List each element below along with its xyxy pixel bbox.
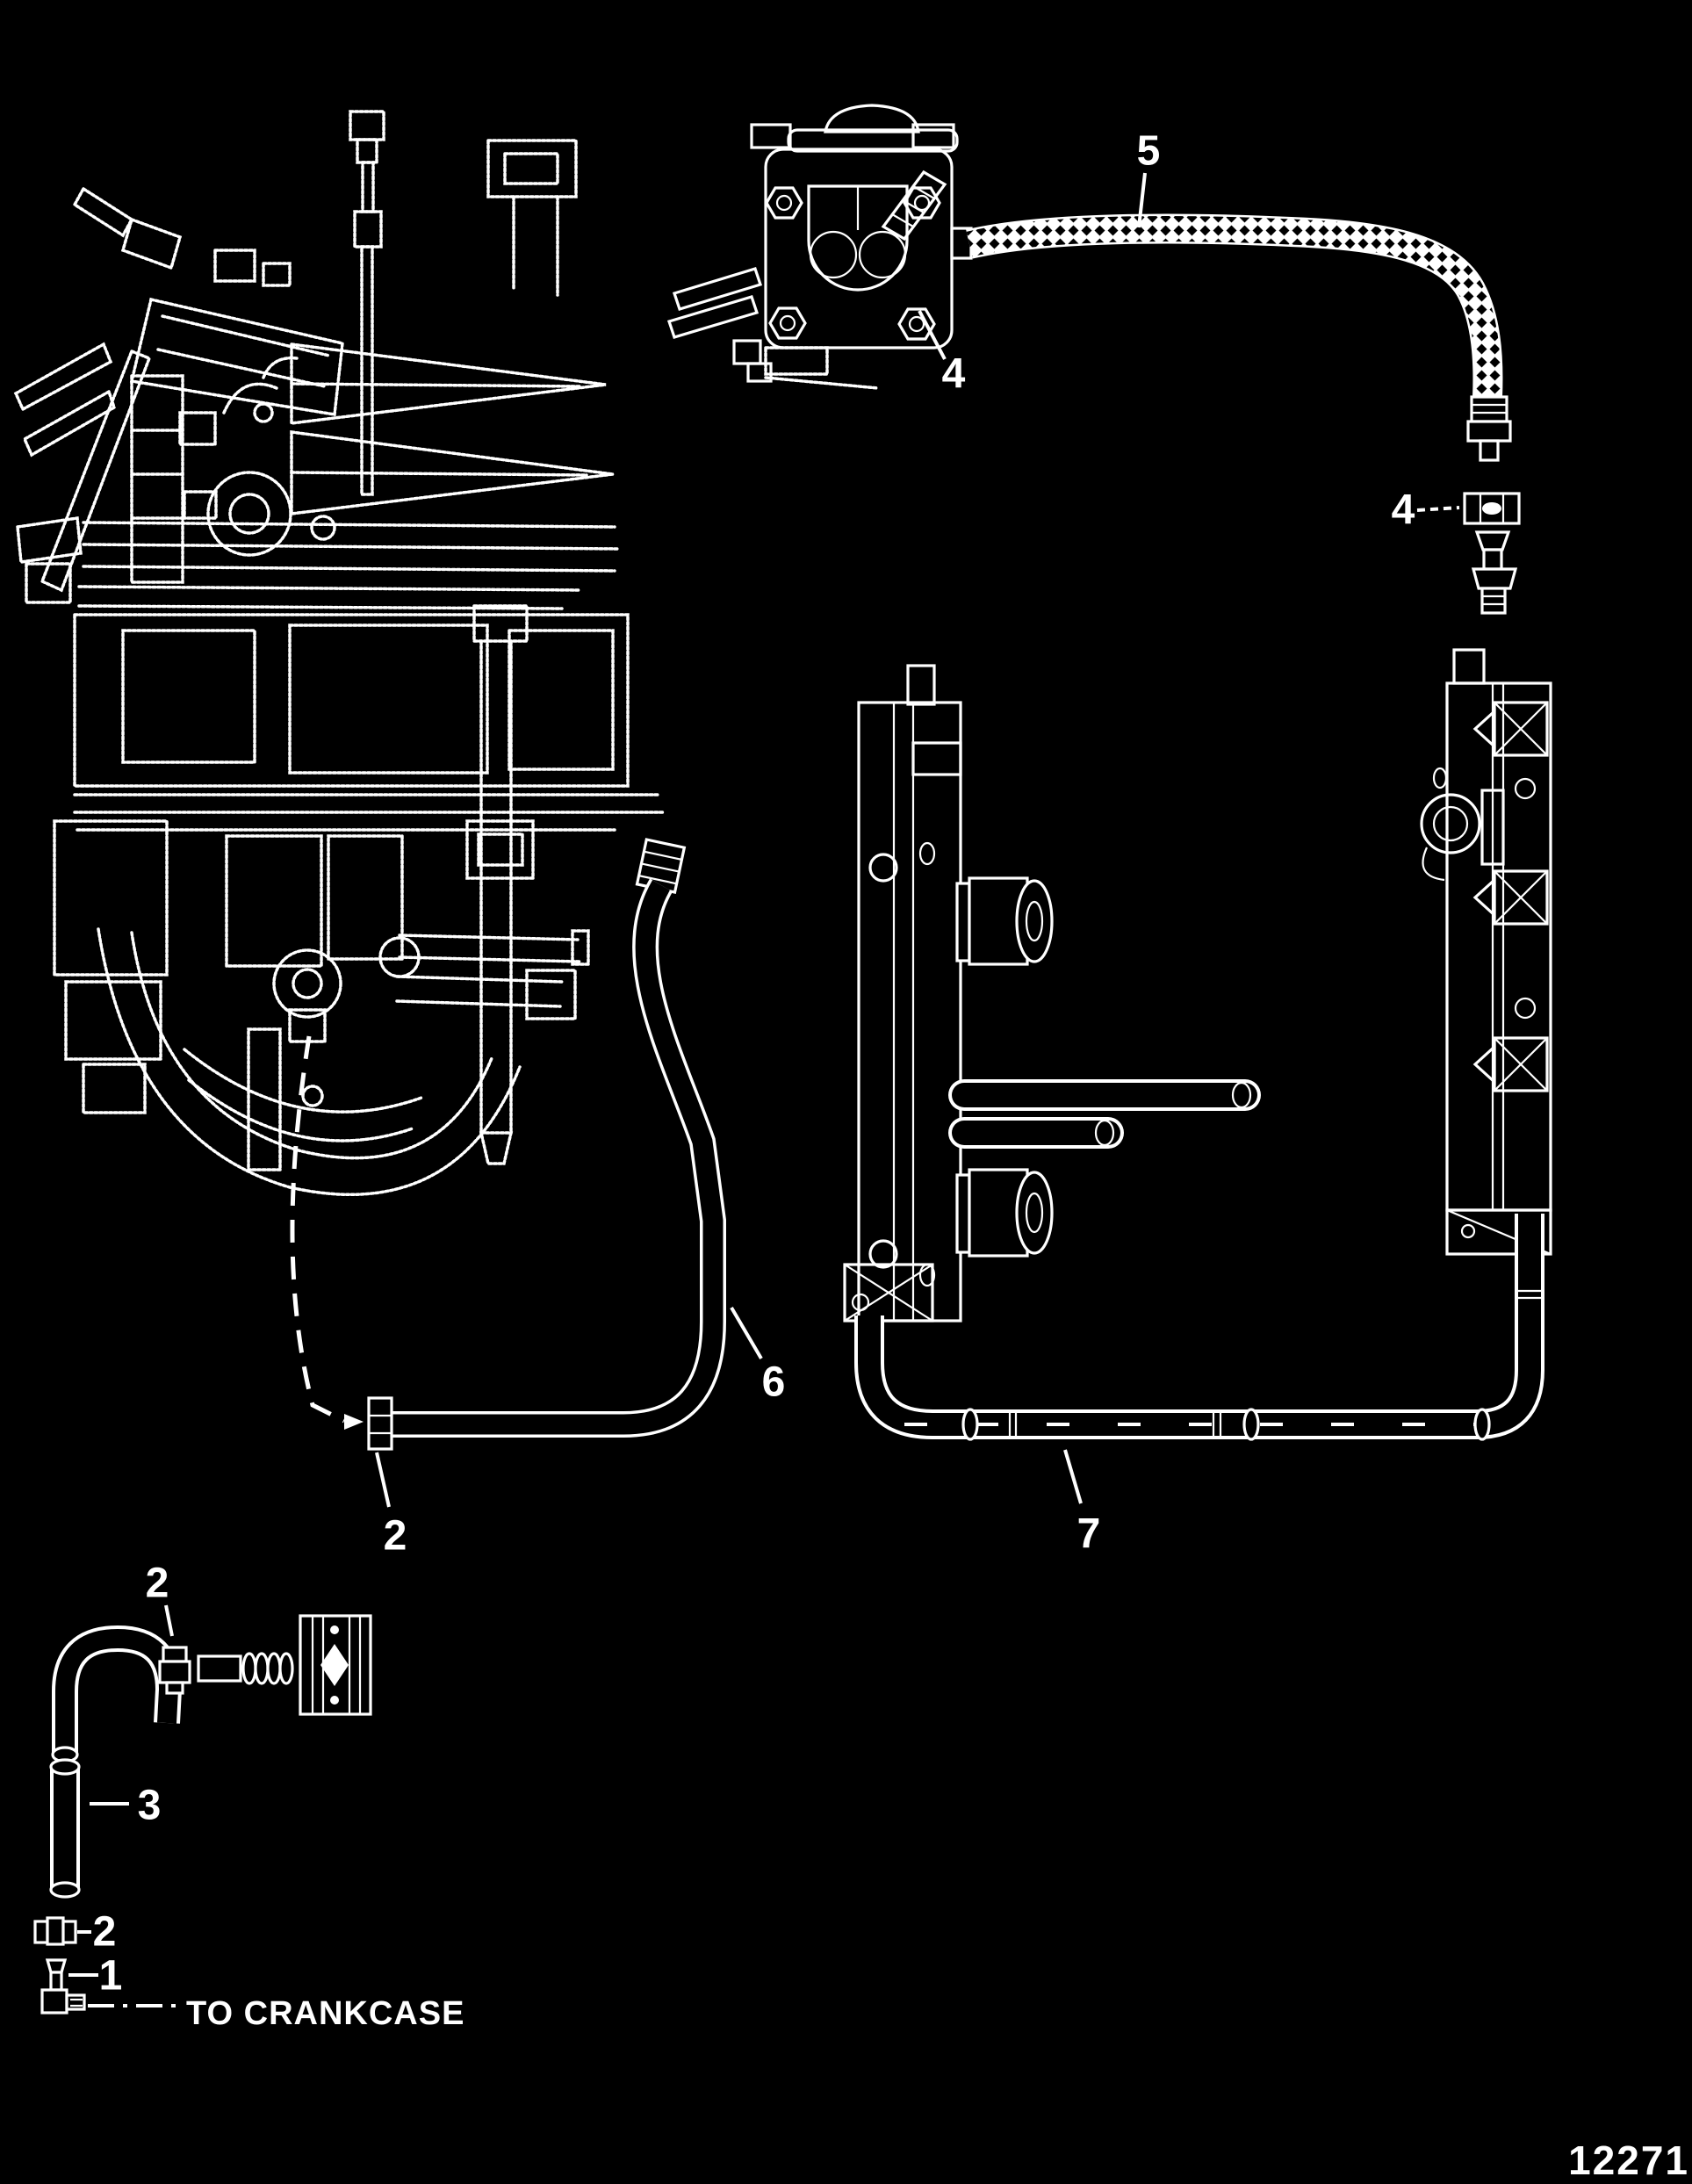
figure-number: 12271 [1568,2137,1689,2183]
callout-2-hose6: 2 [384,1513,407,1560]
fuel-injector [957,1170,1052,1256]
callout-4-pump: 4 [942,351,966,398]
callout-1: 1 [99,1953,123,2000]
parts-diagram-canvas: 5 4 4 6 2 7 2 3 2 1 TO CRANKCASE 12271 [0,0,1692,2184]
hose-end-fitting-2 [369,1398,392,1449]
callout-5: 5 [1137,128,1161,175]
callout-2-upper: 2 [146,1561,169,1607]
hose-coupler [1244,1409,1258,1439]
callout-2-lower: 2 [93,1909,117,1956]
hose-coupler [1475,1409,1489,1439]
hose-coupler [963,1409,977,1439]
fuel-injector [957,878,1052,964]
hose-connector [637,840,684,892]
callout-3: 3 [138,1783,162,1829]
diagram-page: 5 4 4 6 2 7 2 3 2 1 TO CRANKCASE 12271 [0,0,1692,2184]
corrugated-connector [198,1654,292,1683]
check-valve-lower-2 [35,1918,76,1944]
callout-4-clamp: 4 [1392,487,1415,534]
inline-filter-block [300,1616,371,1714]
hose-clamp-4 [1465,494,1519,523]
straight-hose-3 [51,1760,79,1897]
callout-6: 6 [762,1359,786,1406]
crankcase-annotation: TO CRANKCASE [186,1995,464,2032]
callout-7: 7 [1077,1511,1101,1558]
